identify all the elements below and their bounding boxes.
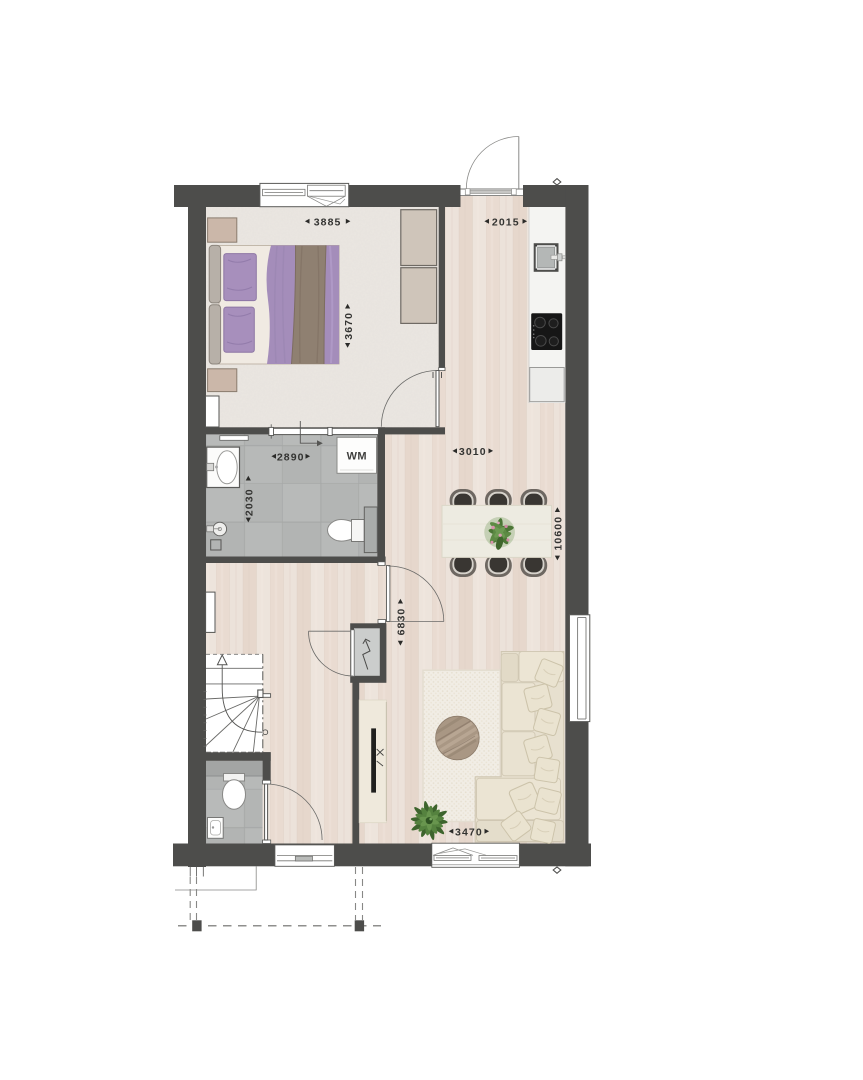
svg-text:3885: 3885 <box>314 216 342 228</box>
svg-text:2015: 2015 <box>492 216 520 228</box>
svg-text:3010: 3010 <box>459 446 487 458</box>
svg-text:3670: 3670 <box>343 312 355 340</box>
svg-text:3470: 3470 <box>455 827 483 839</box>
svg-text:2890: 2890 <box>277 452 305 464</box>
svg-text:WM: WM <box>347 451 367 463</box>
svg-text:6830: 6830 <box>396 608 408 636</box>
svg-text:2030: 2030 <box>244 488 256 516</box>
svg-text:10600: 10600 <box>553 516 565 551</box>
